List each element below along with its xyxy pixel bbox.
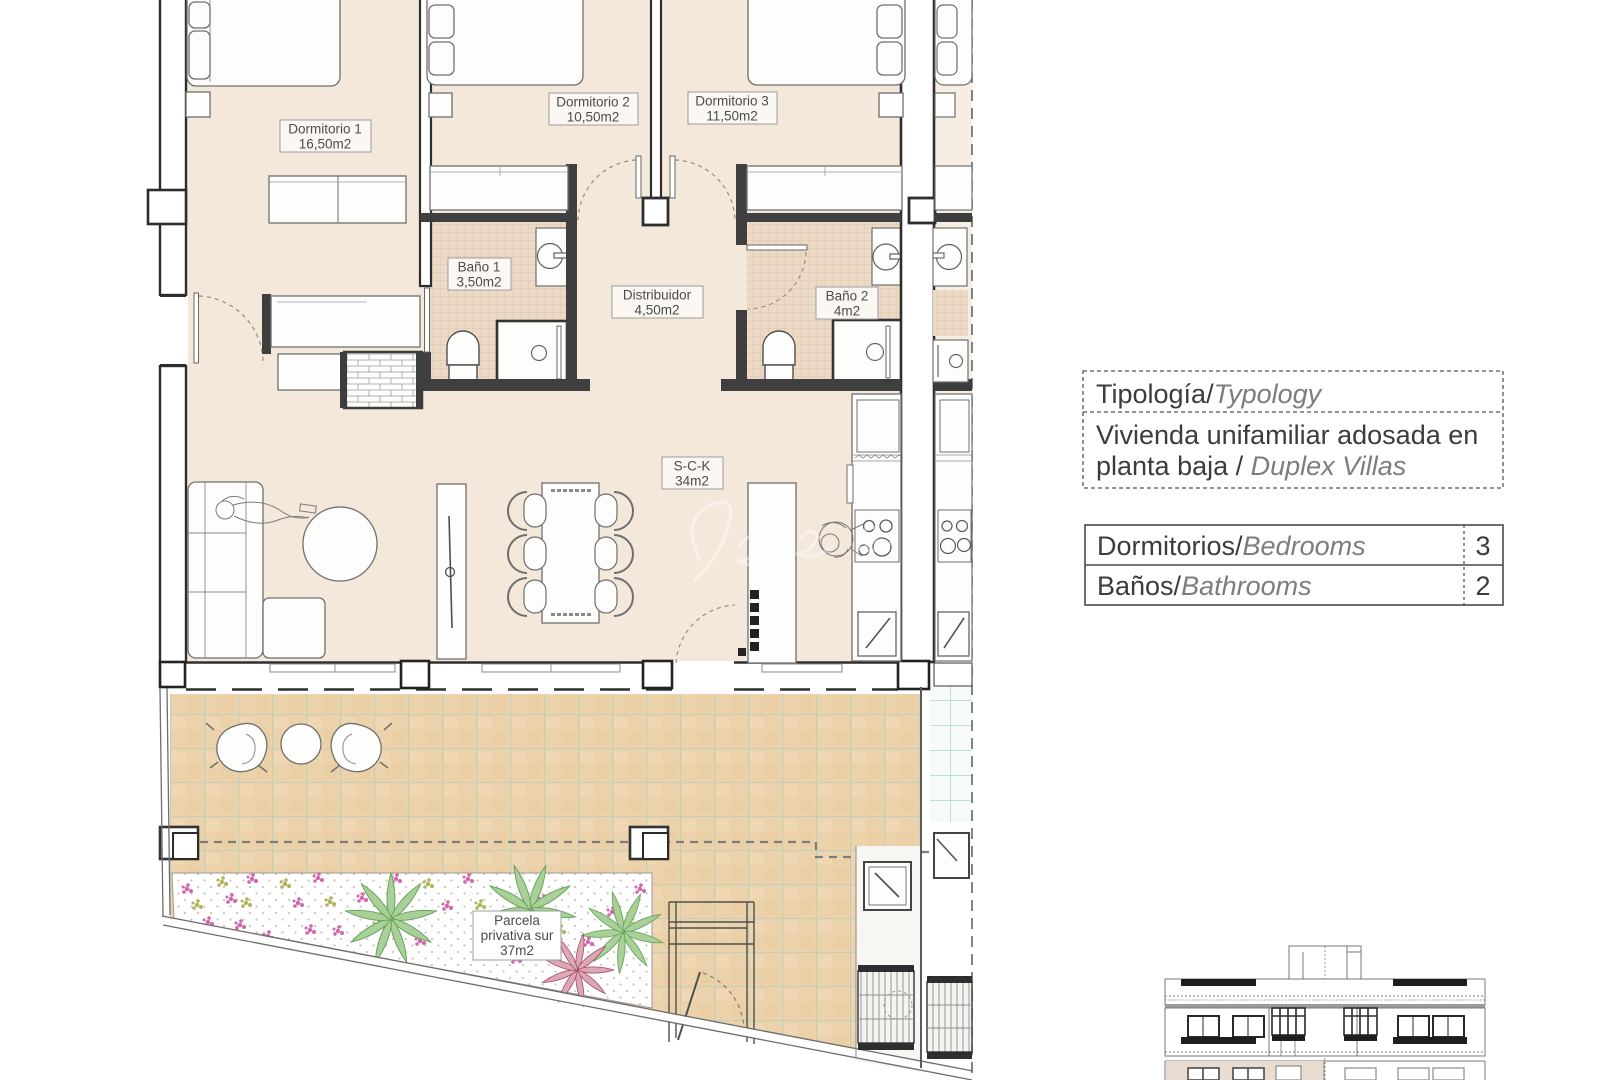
svg-text:Distribuidor: Distribuidor xyxy=(623,288,692,303)
svg-text:Vivienda unifamiliar adosada e: Vivienda unifamiliar adosada en xyxy=(1096,420,1478,450)
svg-text:Dormitorio 1: Dormitorio 1 xyxy=(288,122,362,137)
svg-text:Dormitorios/Bedrooms: Dormitorios/Bedrooms xyxy=(1097,531,1366,561)
svg-text:34m2: 34m2 xyxy=(675,474,709,489)
svg-text:4,50m2: 4,50m2 xyxy=(634,303,679,318)
svg-text:Dormitorio 2: Dormitorio 2 xyxy=(556,95,630,110)
svg-text:Tipología/Typology: Tipología/Typology xyxy=(1096,379,1323,409)
svg-text:planta baja / Duplex Villas: planta baja / Duplex Villas xyxy=(1096,451,1406,481)
svg-text:3: 3 xyxy=(1475,531,1490,561)
svg-text:Baños/Bathrooms: Baños/Bathrooms xyxy=(1097,571,1312,601)
svg-text:11,50m2: 11,50m2 xyxy=(706,109,758,124)
svg-text:37m2: 37m2 xyxy=(500,943,534,958)
svg-text:16,50m2: 16,50m2 xyxy=(299,137,352,152)
svg-text:2: 2 xyxy=(1475,571,1490,601)
svg-text:Parcela: Parcela xyxy=(494,913,540,928)
svg-text:3,50m2: 3,50m2 xyxy=(456,275,501,290)
svg-text:Dormitorio 3: Dormitorio 3 xyxy=(695,94,769,109)
svg-text:Baño 2: Baño 2 xyxy=(826,289,869,304)
svg-text:10,50m2: 10,50m2 xyxy=(567,110,620,125)
svg-text:S-C-K: S-C-K xyxy=(674,459,711,474)
svg-text:4m2: 4m2 xyxy=(834,304,860,319)
svg-text:Baño 1: Baño 1 xyxy=(458,260,501,275)
svg-text:privativa sur: privativa sur xyxy=(481,928,554,943)
